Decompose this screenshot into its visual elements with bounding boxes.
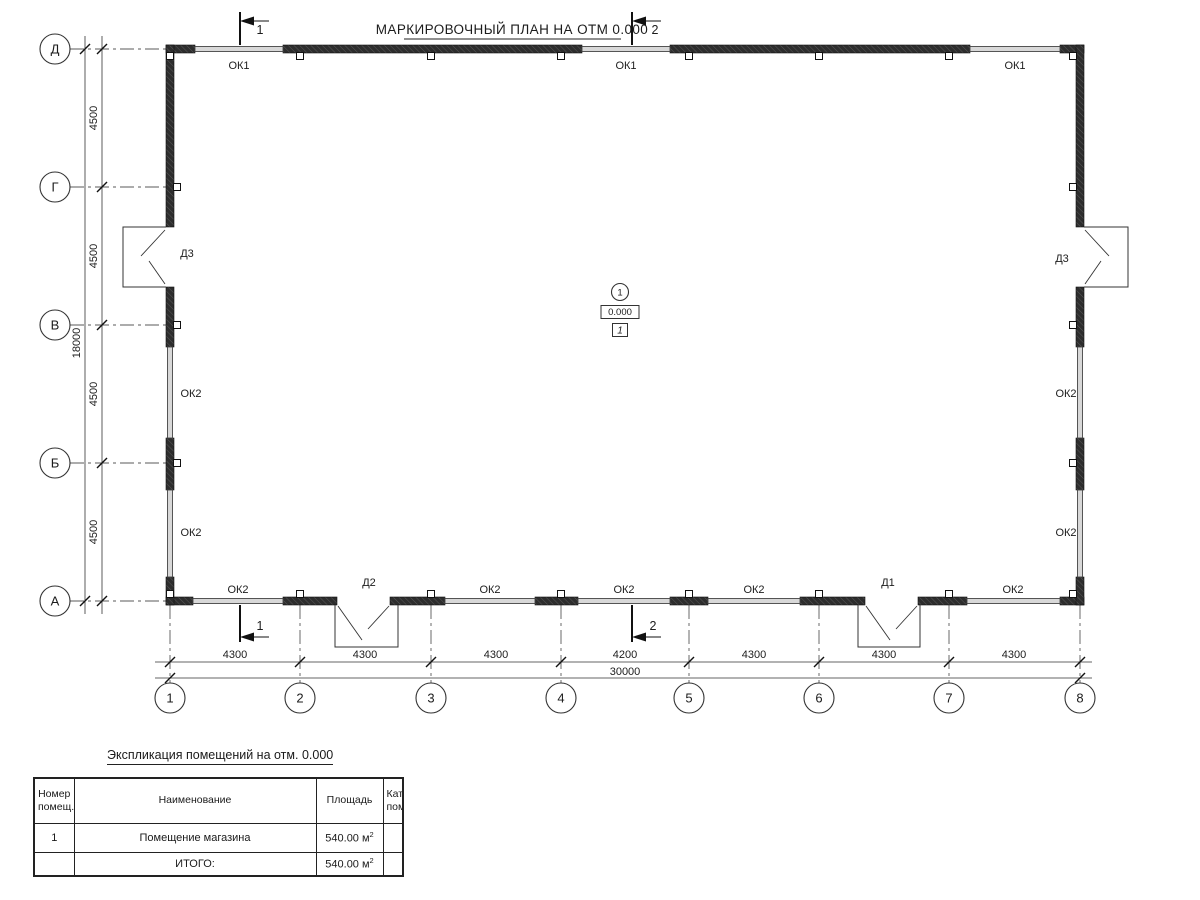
- dim-4300-1: 4300: [223, 649, 247, 661]
- floor-plan: МАРКИРОВОЧНЫЙ ПЛАН НА ОТМ 0.000: [0, 0, 1200, 900]
- section-1-top: 1: [240, 12, 269, 45]
- label-ok1-2: ОК1: [615, 60, 636, 72]
- dim-4300-5: 4300: [742, 649, 766, 661]
- col-header-area: Площадь: [316, 778, 383, 823]
- dimension-labels: 4500 4500 4500 4500 18000 4300 4300 4300…: [71, 106, 1026, 678]
- label-ok2-l2: ОК2: [180, 527, 201, 539]
- window-ok1-1: [195, 47, 283, 52]
- col-header-number: Номер помещ.: [34, 778, 74, 823]
- cell-total-number: [34, 852, 74, 876]
- plan-title: МАРКИРОВОЧНЫЙ ПЛАН НА ОТМ 0.000: [376, 22, 648, 39]
- door-d1: [858, 605, 920, 647]
- axis-label-g: Г: [51, 180, 58, 195]
- dim-4300-6: 4300: [872, 649, 896, 661]
- cell-room-cat: [383, 823, 403, 852]
- axis-label-3: 3: [427, 691, 434, 706]
- window-ok2-l1: [168, 347, 173, 438]
- schedule-title: Экспликация помещений на отм. 0.000: [107, 748, 333, 765]
- schedule-header-row: Номер помещ. Наименование Площадь Кат. п…: [34, 778, 403, 823]
- label-d3-left: Д3: [180, 248, 194, 260]
- axis-label-2: 2: [296, 691, 303, 706]
- label-ok2-b3: ОК2: [613, 584, 634, 596]
- window-ok2-l2: [168, 490, 173, 577]
- axis-label-4: 4: [557, 691, 564, 706]
- label-d1: Д1: [881, 577, 895, 589]
- section-1-bottom-label: 1: [257, 619, 264, 633]
- dim-4300-7: 4300: [1002, 649, 1026, 661]
- label-ok1-1: ОК1: [228, 60, 249, 72]
- label-ok2-b5: ОК2: [1002, 584, 1023, 596]
- dim-4300-2: 4300: [353, 649, 377, 661]
- cell-room-area: 540.00 м2: [316, 823, 383, 852]
- dim-4500-4: 4500: [88, 520, 100, 544]
- axis-label-v: В: [51, 318, 60, 333]
- dim-4200: 4200: [613, 649, 637, 661]
- window-ok2-b1: [193, 599, 283, 604]
- dim-30000: 30000: [610, 666, 641, 678]
- schedule-table: Номер помещ. Наименование Площадь Кат. п…: [33, 777, 404, 877]
- drawing-sheet: МАРКИРОВОЧНЫЙ ПЛАН НА ОТМ 0.000: [0, 0, 1200, 900]
- label-ok2-b1: ОК2: [227, 584, 248, 596]
- window-ok1-2: [582, 47, 670, 52]
- door-d3-right: [1084, 227, 1128, 287]
- col-header-name: Наименование: [74, 778, 316, 823]
- window-ok1-3: [970, 47, 1060, 52]
- room-number-bubble: 1: [617, 288, 622, 299]
- label-ok2-r1: ОК2: [1055, 388, 1076, 400]
- cell-total-label: ИТОГО:: [74, 852, 316, 876]
- dim-4500-3: 4500: [88, 382, 100, 406]
- window-ok2-r1: [1078, 347, 1083, 438]
- cell-room-number: 1: [34, 823, 74, 852]
- window-ok2-b2: [445, 599, 535, 604]
- window-ok2-b3: [578, 599, 670, 604]
- section-1-top-label: 1: [257, 23, 264, 37]
- dim-4500-2: 4500: [88, 244, 100, 268]
- col-header-cat: Кат. пом.: [383, 778, 403, 823]
- section-markers: 1 2 1 2: [240, 12, 661, 642]
- axis-bubbles-cols: 1 2 3 4 5 6 7 8: [155, 683, 1095, 713]
- label-ok2-l1: ОК2: [180, 388, 201, 400]
- axis-label-b: Б: [51, 456, 60, 471]
- label-ok2-b2: ОК2: [479, 584, 500, 596]
- axis-label-5: 5: [685, 691, 692, 706]
- label-d3-right: Д3: [1055, 253, 1069, 265]
- cell-total-area: 540.00 м2: [316, 852, 383, 876]
- axis-label-a: А: [51, 594, 60, 609]
- room-tag: 1 0.000 1: [601, 284, 639, 337]
- section-2-top-label: 2: [652, 23, 659, 37]
- axis-label-6: 6: [815, 691, 822, 706]
- door-d2: [335, 605, 398, 647]
- schedule-title-text: Экспликация помещений на отм. 0.000: [107, 748, 333, 762]
- label-d2: Д2: [362, 577, 376, 589]
- dim-4300-3: 4300: [484, 649, 508, 661]
- window-ok2-b4: [708, 599, 800, 604]
- axis-label-1: 1: [166, 691, 173, 706]
- table-row: 1 Помещение магазина 540.00 м2: [34, 823, 403, 852]
- room-elevation: 0.000: [608, 307, 632, 318]
- dimension-lines: [85, 36, 1092, 678]
- dim-4500-1: 4500: [88, 106, 100, 130]
- section-2-bottom: 2: [632, 605, 661, 642]
- label-ok2-b4: ОК2: [743, 584, 764, 596]
- window-ok2-r2: [1078, 490, 1083, 577]
- cell-total-cat: [383, 852, 403, 876]
- label-ok1-3: ОК1: [1004, 60, 1025, 72]
- axis-label-7: 7: [945, 691, 952, 706]
- room-box-number: 1: [617, 326, 623, 337]
- dim-18000: 18000: [71, 328, 83, 359]
- mark-labels: ОК1 ОК1 ОК1 ОК2 ОК2 ОК2 ОК2 ОК2 ОК2 ОК2 …: [180, 60, 1076, 596]
- cell-room-name: Помещение магазина: [74, 823, 316, 852]
- door-d3-left: [123, 227, 166, 287]
- axis-label-8: 8: [1076, 691, 1083, 706]
- axis-lines: [70, 49, 1080, 683]
- section-1-bottom: 1: [240, 605, 269, 642]
- label-ok2-r2: ОК2: [1055, 527, 1076, 539]
- plan-title-text: МАРКИРОВОЧНЫЙ ПЛАН НА ОТМ 0.000: [376, 22, 648, 37]
- axis-label-d: Д: [51, 42, 60, 57]
- table-total-row: ИТОГО: 540.00 м2: [34, 852, 403, 876]
- section-2-bottom-label: 2: [650, 619, 657, 633]
- window-ok2-b5: [967, 599, 1060, 604]
- axis-bubbles-rows: Д Г В Б А: [40, 34, 70, 616]
